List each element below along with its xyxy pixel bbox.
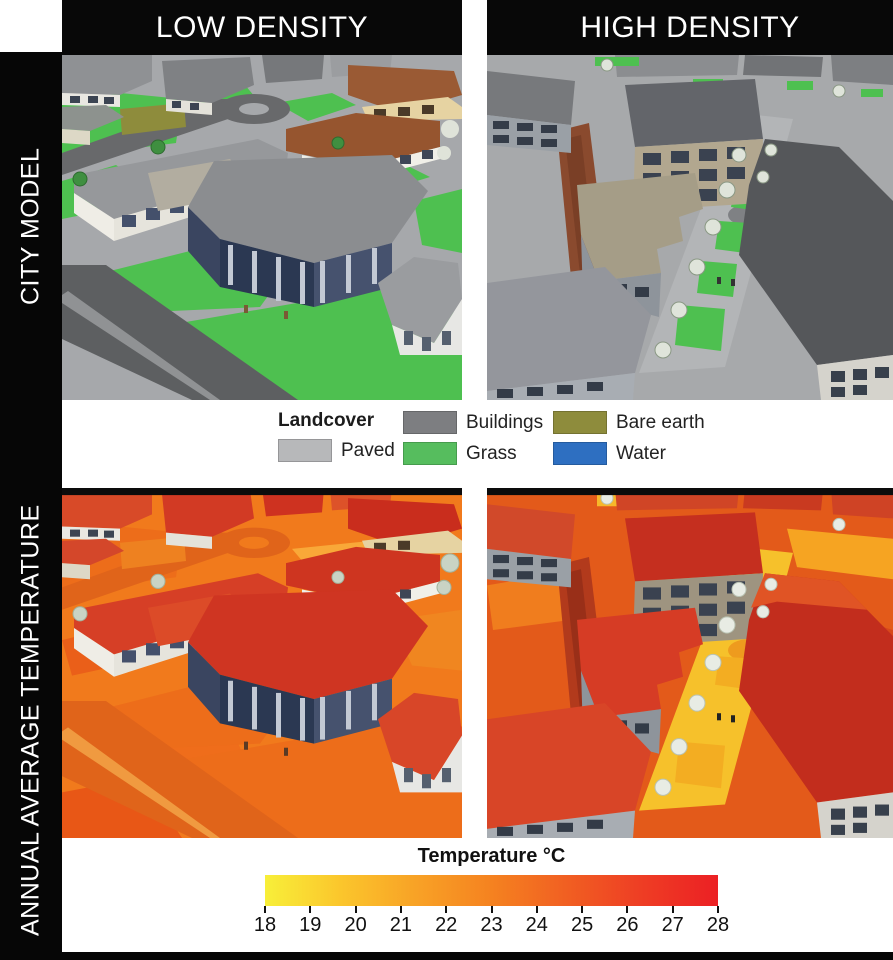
- colorbar-tick-label: 20: [344, 914, 366, 937]
- temperature-colorbar: [265, 875, 718, 906]
- legend-label-grass: Grass: [466, 443, 517, 465]
- colorbar-title: Temperature °C: [265, 845, 718, 868]
- colorbar-tick-label: 21: [390, 914, 412, 937]
- legend-label-water: Water: [616, 443, 666, 465]
- colorbar-tick-label: 25: [571, 914, 593, 937]
- city-model-low-density-image: [62, 55, 462, 400]
- colorbar-tick-mark: [264, 906, 266, 913]
- legend-label-buildings: Buildings: [466, 412, 543, 434]
- colorbar-tick-label: 23: [480, 914, 502, 937]
- column-header-high-density-label: HIGH DENSITY: [580, 11, 799, 45]
- colorbar-tick-label: 26: [616, 914, 638, 937]
- temperature-colorbar-band: Temperature °C 1819202122232425262728: [62, 838, 893, 952]
- row-label-city-model: CITY MODEL: [0, 52, 62, 400]
- colorbar-tick-label: 24: [526, 914, 548, 937]
- legend-item-bare-earth: Bare earth: [553, 411, 705, 434]
- colorbar-ticks: 1819202122232425262728: [265, 906, 718, 946]
- row-label-bar: CITY MODEL ANNUAL AVERAGE TEMPERATURE: [0, 52, 62, 952]
- column-header-low-density-label: LOW DENSITY: [156, 11, 368, 45]
- landcover-legend: Landcover Paved Buildings Grass Bare ear…: [62, 400, 893, 488]
- colorbar-tick-mark: [717, 906, 719, 913]
- legend-item-paved: Paved: [278, 439, 395, 462]
- bottom-frame-bar: [0, 952, 893, 960]
- colorbar-tick-mark: [491, 906, 493, 913]
- colorbar-tick-mark: [309, 906, 311, 913]
- temperature-low-density-render: [62, 488, 462, 838]
- legend-swatch-water: [553, 442, 607, 465]
- column-header-high-density: HIGH DENSITY: [487, 0, 893, 55]
- city-model-high-density-render: [487, 55, 893, 400]
- city-model-low-density-render: [62, 55, 462, 400]
- legend-label-bare-earth: Bare earth: [616, 412, 705, 434]
- legend-item-water: Water: [553, 442, 666, 465]
- colorbar-tick-mark: [536, 906, 538, 913]
- colorbar-tick-mark: [626, 906, 628, 913]
- column-header-low-density: LOW DENSITY: [62, 0, 462, 55]
- colorbar-tick-label: 27: [662, 914, 684, 937]
- legend-swatch-grass: [403, 442, 457, 465]
- colorbar-tick-mark: [400, 906, 402, 913]
- temperature-high-density-image: [487, 488, 893, 838]
- temperature-high-density-render: [487, 488, 893, 838]
- legend-swatch-paved: [278, 439, 332, 462]
- colorbar-tick-label: 18: [254, 914, 276, 937]
- legend-swatch-buildings: [403, 411, 457, 434]
- legend-item-grass: Grass: [403, 442, 517, 465]
- legend-label-paved: Paved: [341, 440, 395, 462]
- colorbar-tick-label: 28: [707, 914, 729, 937]
- colorbar-tick-mark: [581, 906, 583, 913]
- row-label-annual-average-temperature: ANNUAL AVERAGE TEMPERATURE: [0, 488, 62, 952]
- city-model-high-density-image: [487, 55, 893, 400]
- legend-title: Landcover: [278, 410, 374, 432]
- colorbar-tick-label: 22: [435, 914, 457, 937]
- temperature-low-density-image: [62, 488, 462, 838]
- figure: CITY MODEL ANNUAL AVERAGE TEMPERATURE LO…: [0, 0, 893, 960]
- colorbar-tick-mark: [445, 906, 447, 913]
- legend-item-buildings: Buildings: [403, 411, 543, 434]
- colorbar-tick-mark: [355, 906, 357, 913]
- legend-swatch-bare-earth: [553, 411, 607, 434]
- colorbar-tick-label: 19: [299, 914, 321, 937]
- colorbar-tick-mark: [672, 906, 674, 913]
